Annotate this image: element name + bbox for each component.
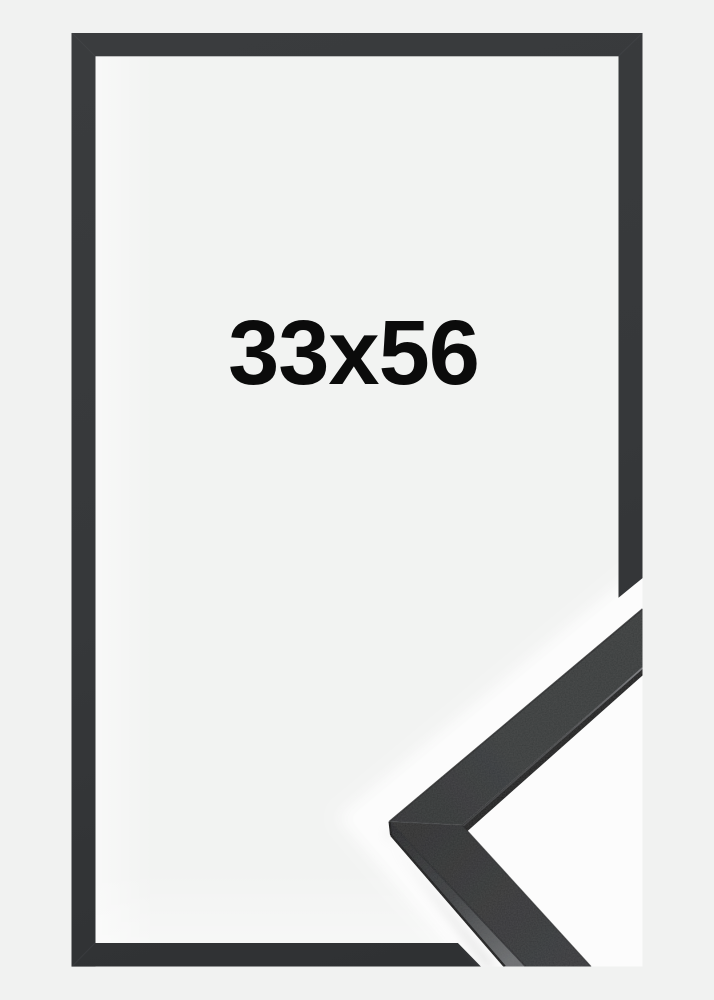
svg-text:33x56: 33x56: [228, 302, 479, 404]
